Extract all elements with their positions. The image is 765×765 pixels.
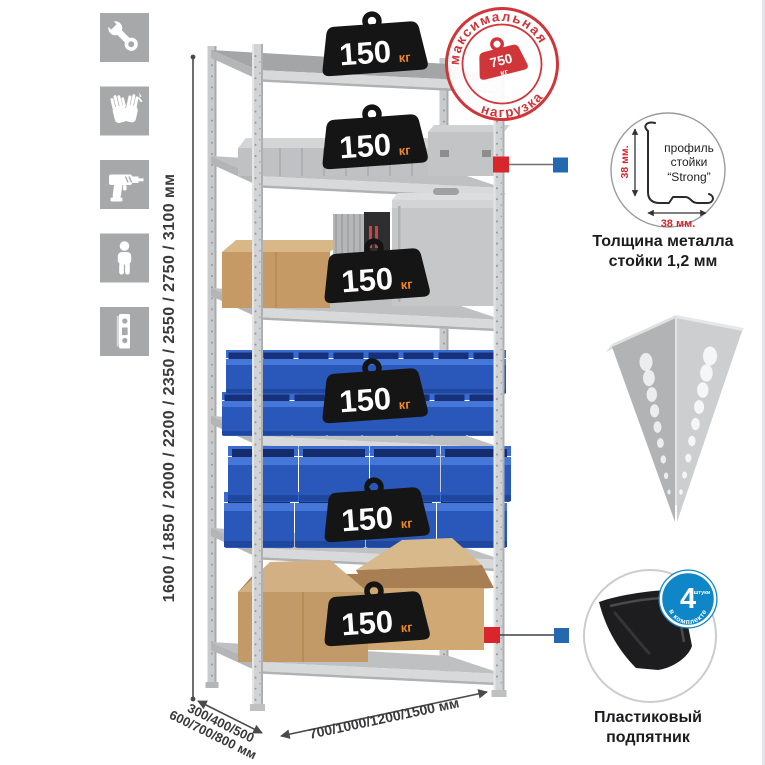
badge-small-text: штуки [694, 590, 711, 596]
width-dimension-label: 700/1000/1200/1500 мм [307, 694, 460, 741]
foot-caption: Пластиковый подпятник [594, 709, 702, 746]
profile-label: профиль стойки “Strong” [664, 141, 714, 184]
svg-text:38 мм.: 38 мм. [619, 145, 631, 178]
svg-text:подпятник: подпятник [606, 729, 691, 746]
included-count-badge: 4 штуки в комплекте [659, 570, 717, 628]
connector-red-marker [484, 627, 500, 643]
svg-text:700/1000/1200/1500 мм: 700/1000/1200/1500 мм [307, 694, 460, 741]
front-right-upright [492, 56, 507, 697]
svg-text:“Strong”: “Strong” [667, 170, 710, 184]
load-badge-2 [319, 103, 428, 169]
front-left-upright [250, 44, 265, 711]
connector-blue-marker [554, 628, 569, 643]
badge-count: 4 [680, 583, 696, 615]
back-left-upright [206, 46, 219, 688]
load-badge-1 [319, 10, 428, 76]
drill-icon [100, 160, 149, 209]
gloves-icon [100, 87, 149, 136]
wrench-icon [100, 13, 149, 62]
connector-blue-marker [553, 158, 568, 173]
foot-detail-circle: 4 штуки в комплекте [584, 570, 717, 702]
feature-icons [100, 13, 149, 356]
svg-text:Пластиковый: Пластиковый [594, 709, 702, 726]
svg-text:стойки: стойки [671, 155, 708, 169]
product-infographic: 150 кг [0, 0, 765, 765]
person-icon [100, 234, 149, 283]
upright-profile-icon [100, 307, 149, 356]
connector-red-marker [493, 157, 509, 173]
thickness-caption: Толщина металла стойки 1,2 мм [592, 233, 733, 270]
top-connector [493, 157, 568, 173]
profile-detail-circle: 38 мм. 38 мм. профиль стойки “Strong” [611, 113, 725, 230]
height-dimension-label: 1600 / 1850 / 2000 / 2200 / 2350 / 2550 … [161, 174, 178, 603]
svg-text:профиль: профиль [664, 141, 714, 155]
height-dimension-line [191, 55, 196, 702]
max-load-stamp: максимальная нагрузка 750 кг [435, 0, 570, 132]
svg-text:стойки 1,2 мм: стойки 1,2 мм [609, 253, 718, 270]
svg-text:38 мм.: 38 мм. [661, 218, 696, 230]
bottom-connector [484, 627, 569, 643]
upright-post-image [606, 315, 744, 522]
infographic-svg: 150 кг [0, 0, 765, 765]
svg-text:Толщина металла: Толщина металла [592, 233, 733, 250]
